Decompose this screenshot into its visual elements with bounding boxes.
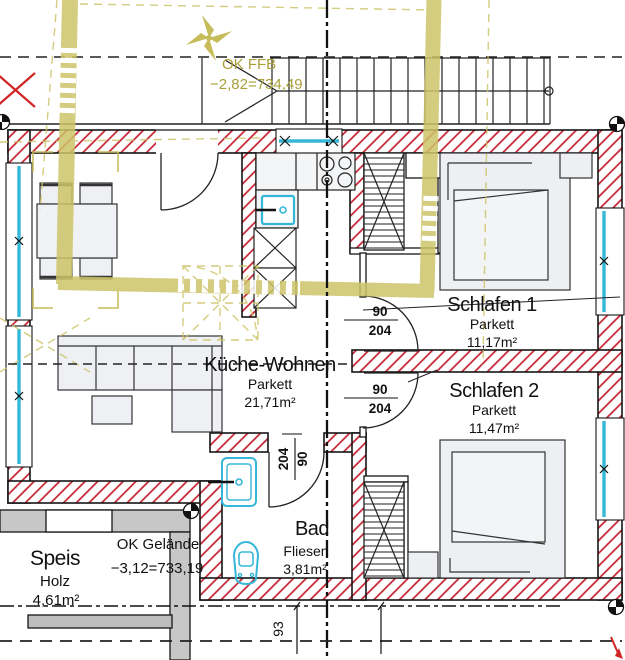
- wall-bedroom-divider: [352, 350, 622, 372]
- wall-bottom: [200, 578, 622, 600]
- survey-marker-icon: [184, 504, 199, 519]
- stair-upper: [364, 153, 404, 250]
- stair2-north-wall: [364, 476, 408, 482]
- door1-height: 204: [369, 323, 392, 338]
- floor-plan-canvas: OK FFB −2,82=734,49 Küche-Wohnen Parkett…: [0, 0, 625, 660]
- window-kitchen-top: [276, 129, 342, 154]
- dimension-93: [294, 602, 384, 654]
- bed-1: [440, 153, 592, 290]
- dining-set: [37, 183, 117, 279]
- wall-living-bottom: [8, 481, 222, 503]
- old-stair-grid: [183, 266, 258, 340]
- window-left-2: [6, 326, 32, 467]
- sofa: [58, 336, 222, 432]
- demolition-band-left: [64, 0, 70, 284]
- room-area-schlafen1: 11,17m²: [467, 334, 518, 350]
- room-name-kueche: Küche-Wohnen: [204, 354, 336, 376]
- survey-marker-icon: [610, 117, 625, 132]
- room-floor-schlafen1: Parkett: [470, 316, 514, 332]
- door1-width: 90: [372, 304, 387, 319]
- window-right-1: [596, 208, 624, 315]
- bath-door-height: 204: [276, 447, 291, 470]
- stair-cut-line: [225, 91, 277, 122]
- room-area-kueche: 21,71m²: [244, 394, 296, 410]
- level-value-gelaende: −3,12=733,19: [111, 560, 204, 577]
- annex-wall-inner: [28, 615, 172, 628]
- floor-plan-page: OK FFB −2,82=734,49 Küche-Wohnen Parkett…: [0, 0, 625, 660]
- door2-height: 204: [369, 401, 392, 416]
- room-area-bad: 3,81m²: [283, 561, 327, 577]
- dining-table: [37, 204, 117, 258]
- dimension-93-label: 93: [270, 621, 286, 637]
- annex-opening: [46, 510, 112, 532]
- room-floor-schlafen2: Parkett: [472, 402, 516, 418]
- room-floor-kueche: Parkett: [248, 376, 292, 392]
- door2-width: 90: [372, 382, 387, 397]
- wall-bath-north-left: [210, 433, 268, 452]
- existing-annex: [0, 510, 190, 660]
- bed-2: [408, 440, 565, 578]
- level-label-ffb: OK FFB: [222, 56, 276, 73]
- stair-lower: [364, 482, 404, 578]
- level-value-ffb: −2,82=734,49: [210, 76, 303, 93]
- nightstand-1: [560, 153, 592, 178]
- window-right-2: [596, 418, 624, 520]
- survey-marker-icon: [0, 115, 10, 130]
- bath-door-width: 90: [295, 451, 310, 466]
- nightstand-2: [408, 552, 438, 578]
- room-name-speis: Speis: [30, 547, 80, 570]
- room-floor-speis: Holz: [40, 573, 70, 590]
- north-star-icon: [186, 15, 232, 61]
- room-area-speis: 4,61m²: [33, 592, 80, 609]
- sink-icon: [256, 196, 294, 224]
- demolition-x-mark: [0, 73, 35, 107]
- coffee-table: [92, 396, 132, 424]
- demolition-band-right: [427, 0, 434, 292]
- site-elements: [0, 15, 622, 124]
- demolition-band-cross: [58, 283, 434, 291]
- survey-marker-icon: [609, 600, 624, 615]
- room-name-schlafen1: Schlafen 1: [447, 294, 537, 316]
- window-left-1: [6, 163, 32, 320]
- room-area-schlafen2: 11,47m²: [469, 420, 520, 436]
- entrance-door: [156, 128, 218, 210]
- room-name-bad: Bad: [295, 518, 329, 540]
- level-label-gelaende: OK Gelände: [117, 536, 200, 553]
- room-name-schlafen2: Schlafen 2: [449, 380, 539, 402]
- tall-cabinets: [254, 228, 296, 308]
- room-floor-bad: Fliesen: [283, 543, 328, 559]
